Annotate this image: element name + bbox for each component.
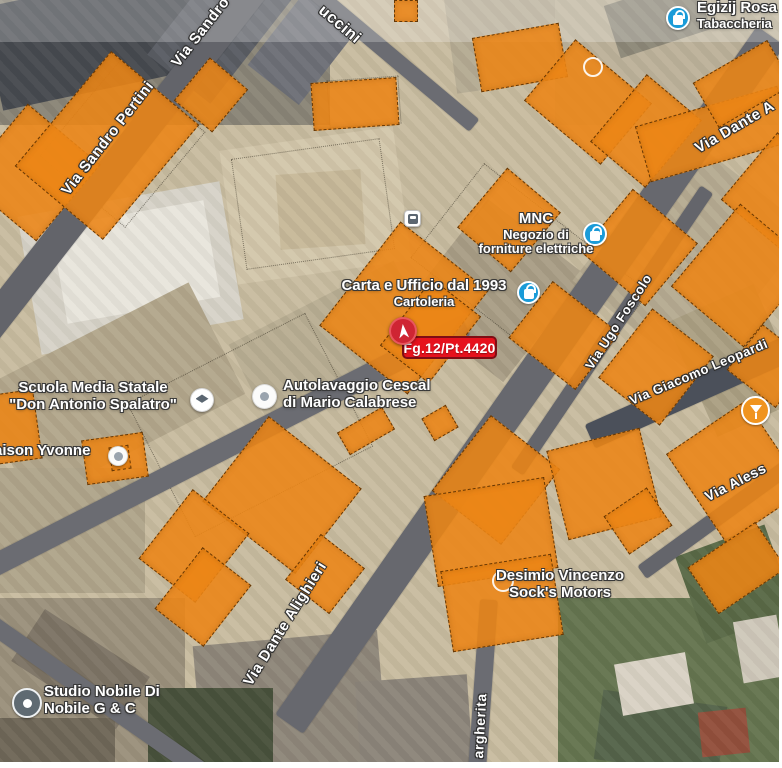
- parcel-id-badge[interactable]: Fg.12/Pt.4420: [402, 336, 497, 359]
- image-border-bottom: [0, 762, 782, 768]
- marker-layer: Fg.12/Pt.4420: [0, 0, 782, 768]
- satellite-map-canvas[interactable]: Via Sandro PertiniVia SandroucciniVia Da…: [0, 0, 782, 768]
- parcel-marker[interactable]: [389, 317, 417, 345]
- navigation-arrow-icon: [396, 323, 410, 338]
